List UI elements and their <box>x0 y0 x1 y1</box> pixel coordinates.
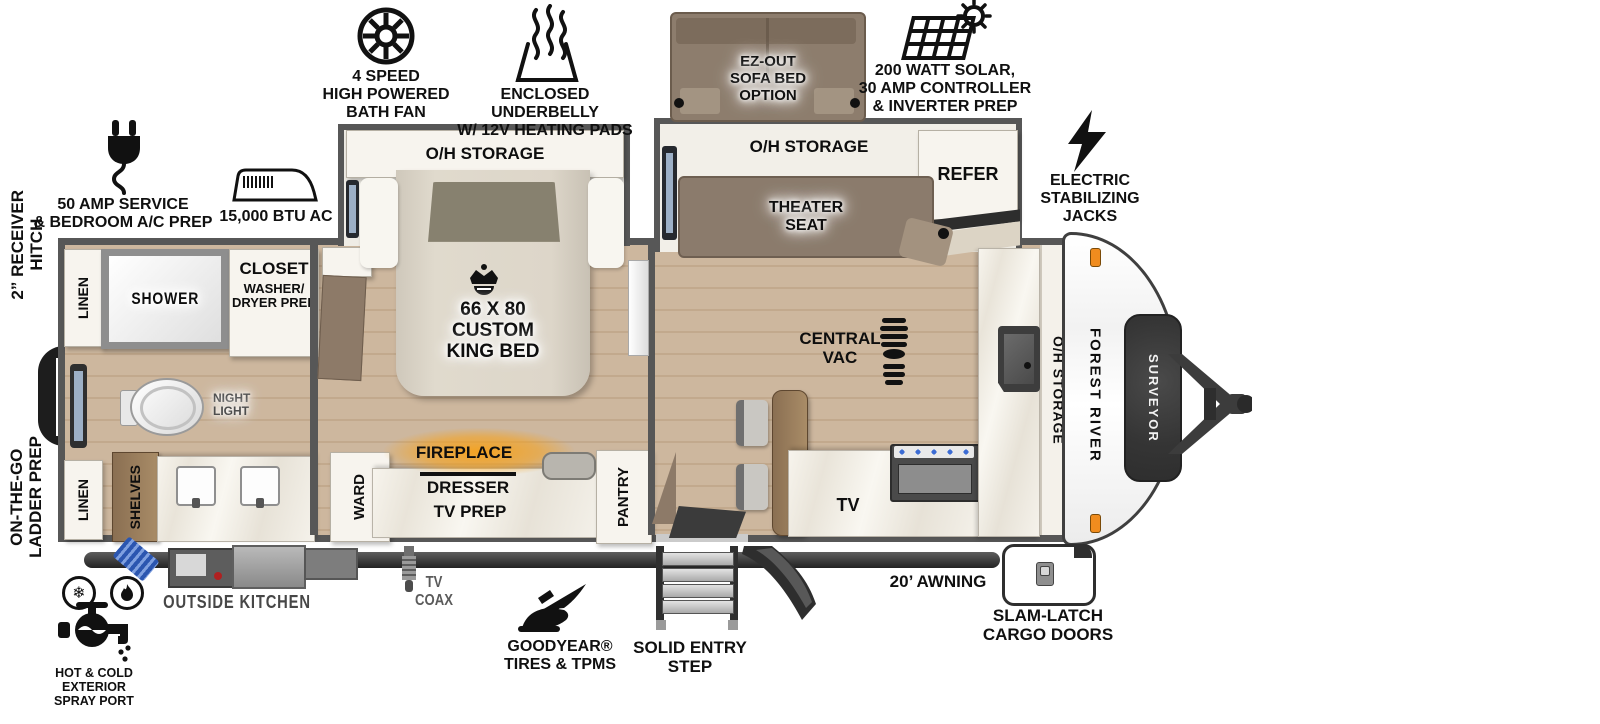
linen-cabinet-bottom: LINEN <box>64 460 103 540</box>
refer-label: REFER <box>937 165 998 185</box>
fireplace-label: FIREPLACE <box>404 444 524 463</box>
kitchen-sink-basin <box>1004 334 1034 384</box>
fireplace-bar <box>420 472 516 476</box>
underbelly-callout: ENCLOSED UNDERBELLY W/ 12V HEATING PADS <box>445 86 645 140</box>
sofa-bed-graphic: EZ-OUT SOFA BED OPTION <box>670 12 866 122</box>
tv-label: TV <box>818 496 878 516</box>
goodyear-brand-label: GOODYEAR® <box>494 638 626 656</box>
central-vac-label: CENTRAL VAC <box>798 330 882 367</box>
ladder-prep-callout-box: ON-THE-GO LADDER PREP <box>0 412 52 582</box>
oh-storage-label: O/H STORAGE <box>426 145 545 164</box>
linen-cabinet-top: LINEN <box>64 249 103 347</box>
receiver-hitch-callout: 2” RECEIVER HITCH <box>8 190 46 300</box>
king-bed-label: 66 X 80 CUSTOM KING BED <box>428 300 558 363</box>
solar-icon <box>896 0 1000 62</box>
awning-callout: 20’ AWNING <box>880 572 996 591</box>
bedroom-window-left-glass <box>349 185 356 233</box>
wall-bath-bedroom <box>310 245 318 535</box>
bed-sheet-left <box>360 178 398 268</box>
brand-maker: FOREST RIVER <box>1082 290 1106 500</box>
dining-chair-bottom <box>736 464 768 510</box>
living-window-left-glass <box>666 153 673 233</box>
outside-kitchen-knob <box>214 572 222 580</box>
outside-kitchen-cabinet <box>232 545 306 589</box>
cargo-door-latch-button <box>1040 566 1050 576</box>
theater-seat-cupholder <box>938 228 949 239</box>
kitchen-sink-drain <box>1024 362 1031 369</box>
underbelly-icon <box>506 4 586 86</box>
tv-prep-label: TV PREP <box>410 503 530 522</box>
receiver-hitch-callout-box: 2” RECEIVER HITCH <box>2 150 52 340</box>
goodyear-sub-label: TIRES & TPMS <box>494 656 626 674</box>
shower-label: SHOWER <box>131 290 199 309</box>
marker-light-top <box>1090 248 1101 267</box>
ladder-prep-callout: ON-THE-GO LADDER PREP <box>7 436 45 558</box>
bed-pillow <box>428 182 560 250</box>
stove-burners <box>894 446 974 458</box>
surveyor-label: SURVEYOR <box>1146 354 1160 443</box>
bedroom-door-open <box>628 260 649 356</box>
ward-label: WARD <box>352 474 369 520</box>
flame-icon <box>120 584 134 602</box>
grill-brush <box>112 536 159 582</box>
linen-label: LINEN <box>76 277 91 319</box>
service-50amp-callout: 50 AMP SERVICE & BEDROOM A/C PREP <box>30 196 216 232</box>
pantry-label: PANTRY <box>616 467 633 527</box>
oh-storage-label: O/H STORAGE <box>750 138 869 157</box>
floorplan-canvas: O/H STORAGE O/H STORAGE REFER THEATER SE… <box>0 0 1600 724</box>
goodyear-wingfoot-icon <box>512 576 608 636</box>
night-light-label: NIGHT LIGHT <box>205 392 275 418</box>
kitchen-counter-right <box>978 248 1040 537</box>
stabilizing-jacks-callout: ELECTRIC STABILIZING JACKS <box>1032 172 1148 226</box>
bathroom-window-glass <box>74 371 83 441</box>
tv-coax-callout: TV COAX <box>403 574 465 610</box>
dresser-label: DRESSER <box>408 479 528 498</box>
bootprint-icon <box>878 318 910 386</box>
vanity-stool <box>542 452 596 480</box>
shelves: SHELVES <box>112 452 159 542</box>
wall-bedroom-living <box>648 245 655 535</box>
hitch-tongue <box>1168 348 1252 460</box>
crown-icon <box>466 262 502 300</box>
entry-step-callout: SOLID ENTRY STEP <box>622 638 758 676</box>
closet-sub-label: WASHER/ DRYER PREP <box>230 282 318 311</box>
shelves-label: SHELVES <box>128 465 143 529</box>
linen-label: LINEN <box>76 479 91 521</box>
solar-callout: 200 WATT SOLAR, 30 AMP CONTROLLER & INVE… <box>852 62 1038 116</box>
toilet-seat <box>140 386 196 430</box>
spray-port-icon <box>58 602 142 664</box>
bathroom-door-open <box>317 275 366 381</box>
bath-fan-callout: 4 SPEED HIGH POWERED BATH FAN <box>318 68 454 122</box>
marker-light-bottom <box>1090 514 1101 533</box>
vanity-sink-left-faucet <box>192 498 200 508</box>
entry-steps <box>656 546 738 630</box>
outside-kitchen-callout: OUTSIDE KITCHEN <box>159 592 315 612</box>
entry-door-open <box>742 546 818 620</box>
theater-seat: THEATER SEAT <box>678 176 934 258</box>
dining-chair-top <box>736 400 768 446</box>
sofa-bed-callout: EZ-OUT SOFA BED OPTION <box>708 54 828 104</box>
power-plug-icon <box>100 120 148 196</box>
closet-washer-dryer: CLOSET WASHER/ DRYER PREP <box>229 249 319 357</box>
pantry: PANTRY <box>596 450 652 544</box>
closet-label: CLOSET <box>230 260 318 279</box>
outside-kitchen-griddle-plate <box>176 554 206 576</box>
cargo-doors-callout: SLAM-LATCH CARGO DOORS <box>976 606 1120 644</box>
forest-river-label: FOREST RIVER <box>1086 328 1103 463</box>
ac-unit-callout: 15,000 BTU AC <box>216 208 336 226</box>
bed-sheet-right <box>588 178 624 268</box>
living-overhead-storage: O/H STORAGE <box>714 134 904 160</box>
outside-kitchen-drawer <box>304 548 358 580</box>
snowflake-icon: ❄ <box>72 583 85 603</box>
stove-oven <box>898 464 972 494</box>
goodyear-callout: GOODYEAR® TIRES & TPMS <box>494 638 626 674</box>
vanity-sink-right-faucet <box>256 498 264 508</box>
theater-seat-label: THEATER SEAT <box>769 199 843 234</box>
spray-port-callout: HOT & COLD EXTERIOR SPRAY PORT <box>22 666 166 708</box>
shower-pan: SHOWER <box>109 256 221 342</box>
ac-unit-icon <box>228 162 320 206</box>
lightning-bolt-icon <box>1066 110 1110 172</box>
bath-fan-icon <box>356 6 416 66</box>
